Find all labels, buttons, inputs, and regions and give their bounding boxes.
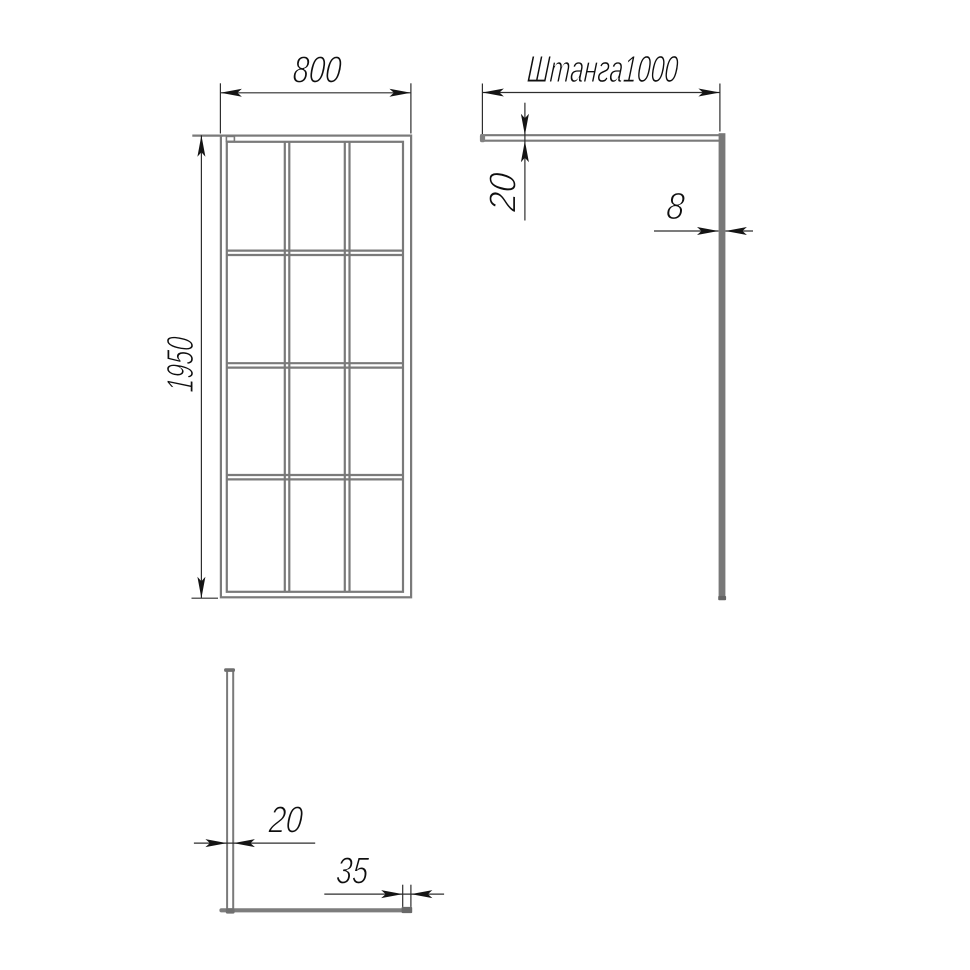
svg-text:8: 8 <box>665 186 686 228</box>
svg-text:35: 35 <box>335 851 371 893</box>
svg-text:1950: 1950 <box>160 335 202 393</box>
svg-text:800: 800 <box>291 49 343 91</box>
svg-text:20: 20 <box>267 799 305 841</box>
svg-text:Штанга1000: Штанга1000 <box>526 49 680 91</box>
svg-text:20: 20 <box>483 171 525 214</box>
